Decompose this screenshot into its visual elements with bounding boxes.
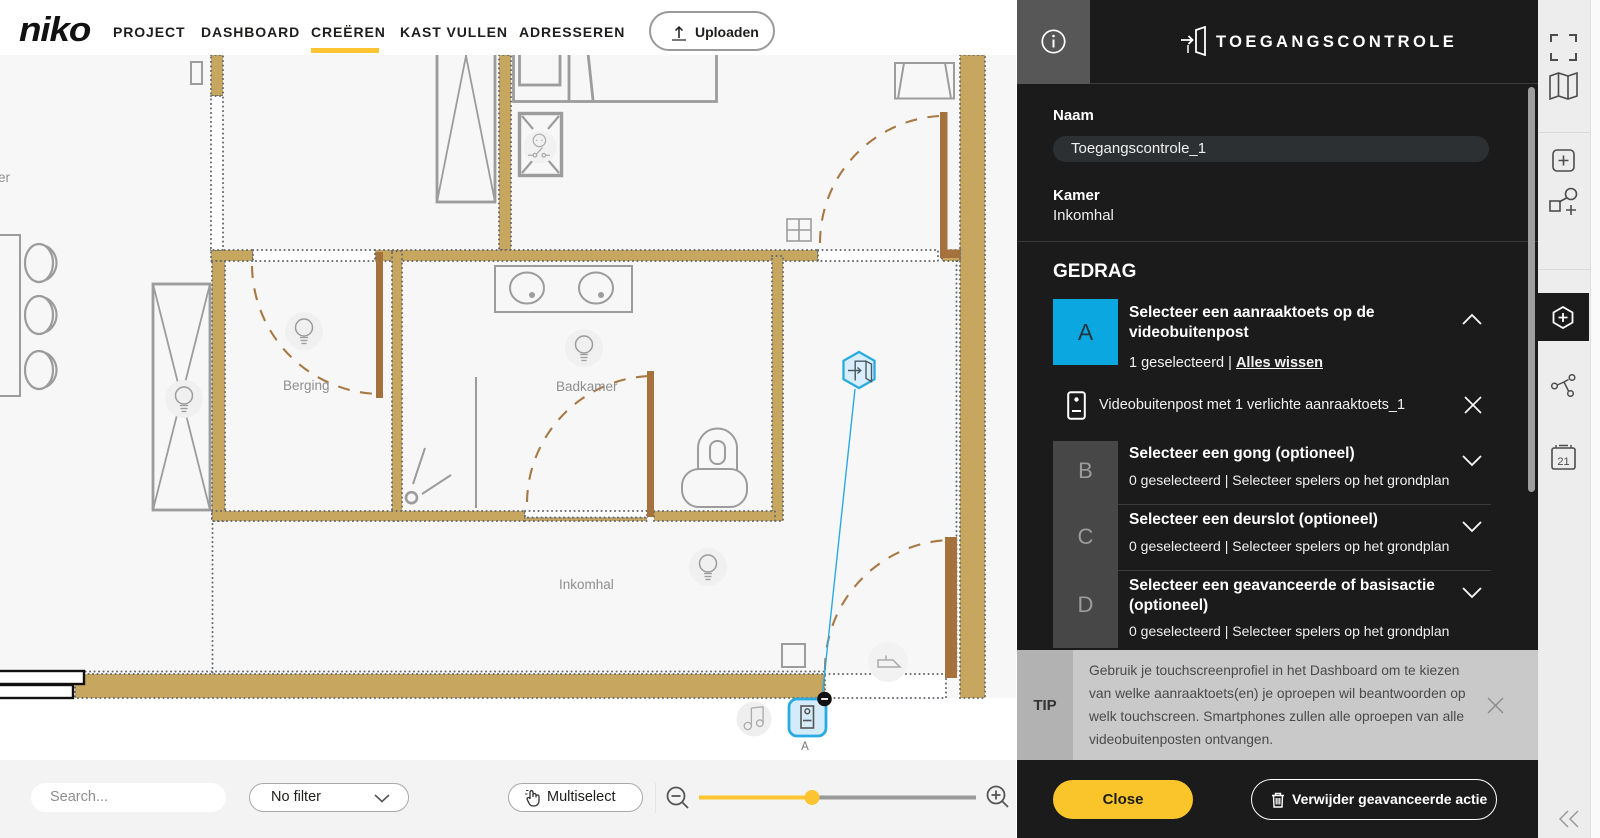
svg-text:21: 21 xyxy=(1557,456,1569,468)
svg-text:Badkamer: Badkamer xyxy=(556,379,618,394)
svg-text:Inkomhal: Inkomhal xyxy=(559,577,614,592)
svg-text:Berging: Berging xyxy=(283,378,330,393)
svg-text:A: A xyxy=(801,741,809,753)
svg-text:er: er xyxy=(0,170,11,185)
